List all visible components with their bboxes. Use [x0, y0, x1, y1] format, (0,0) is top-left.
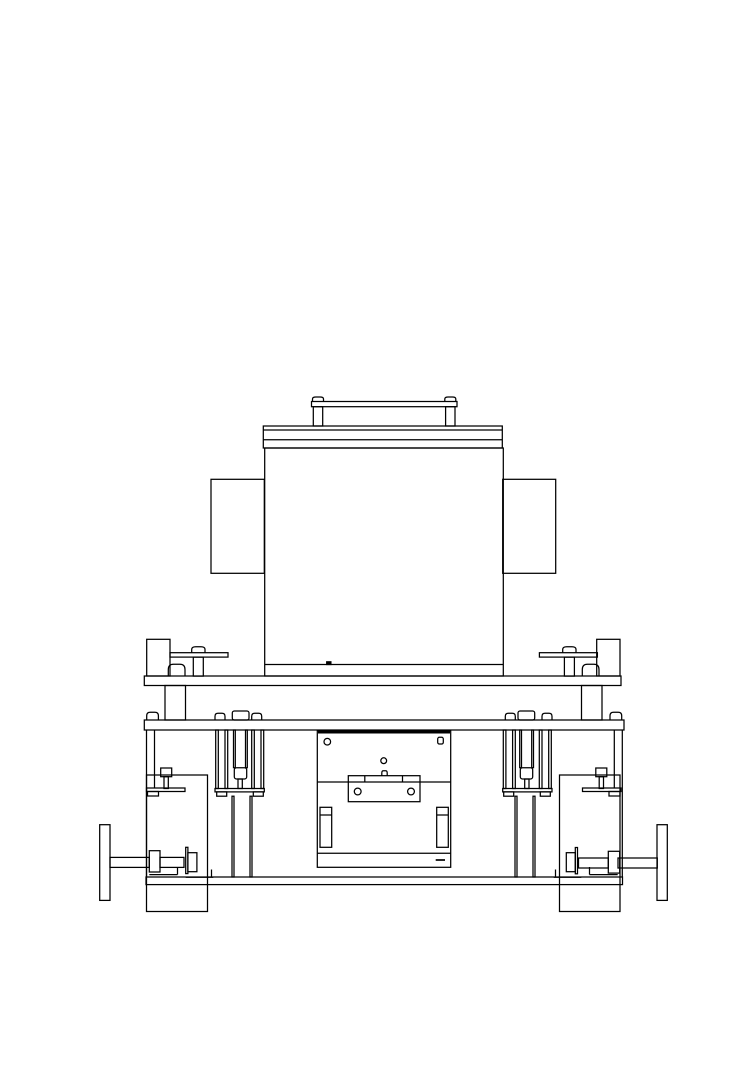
lift-handle-post-left: [313, 407, 322, 426]
guide-cap-right: [518, 711, 535, 720]
guide-leg-right-1: [533, 796, 535, 877]
guide-cap-left: [232, 711, 249, 720]
cabinet-bolt-pad-right: [609, 792, 620, 797]
axle-flange-b-left: [188, 853, 197, 872]
guide-dome-right-a: [542, 713, 552, 720]
guide-nut-right: [520, 768, 532, 779]
side-flange-left: [211, 479, 264, 573]
caster-wheel-right: [657, 825, 667, 901]
clamp-pad-left: [168, 664, 185, 676]
shelf-column-left: [165, 686, 186, 721]
deck-bolt-dome-far-left: [147, 712, 159, 720]
guide-rail-right-3: [513, 730, 516, 789]
lift-handle-rail: [312, 402, 458, 407]
clamp-bar-hole-right: [408, 788, 415, 795]
axle-outer-left: [110, 857, 149, 867]
guide-leg-right-2: [515, 796, 517, 877]
guide-foot-pad-right-2: [540, 792, 550, 796]
guide-rail-left-2: [225, 730, 228, 789]
guide-rail-left-4: [261, 730, 264, 789]
cabinet-bolt-stem-right: [599, 777, 603, 789]
clamp-bar-hole-left: [354, 788, 361, 795]
shelf-column-right: [582, 686, 603, 721]
guide-screw-right-1: [532, 730, 534, 768]
guide-stem-left: [238, 779, 242, 789]
guide-leg-left-2: [250, 796, 252, 877]
guide-dome-left-a: [215, 713, 225, 720]
guide-leg-left-1: [232, 796, 234, 877]
clamp-lever-knob-left: [192, 647, 205, 653]
guide-rail-left-1: [216, 730, 219, 789]
main-housing-weld-tick: [327, 662, 331, 665]
guide-screw-right-2: [520, 730, 522, 768]
fixture-hole-top-left: [324, 738, 331, 745]
deck-plate: [144, 720, 624, 730]
guide-rail-right-4: [503, 730, 506, 789]
lift-handle-cap-right: [445, 397, 456, 402]
clamp-lever-right: [539, 653, 597, 657]
side-flange-right: [503, 479, 556, 573]
guide-dome-right-b: [505, 713, 515, 720]
cad-drawing-page: [0, 0, 755, 1083]
deck-bolt-dome-far-right: [610, 712, 622, 720]
base-plate: [146, 877, 623, 885]
clamp-lever-post-right: [564, 657, 574, 676]
guide-foot-pad-left-2: [253, 792, 263, 796]
machine-front-view-drawing: [0, 0, 755, 1083]
fixture-hole-top-right: [438, 737, 444, 744]
clamp-lever-post-left: [193, 657, 203, 676]
clamp-block-left: [147, 639, 170, 676]
fixture-slot-right: [437, 807, 449, 847]
guide-nut-left: [234, 768, 246, 779]
top-cover-plate: [263, 426, 502, 448]
guide-stem-right: [525, 779, 529, 789]
axle-flange-a-left: [149, 851, 160, 872]
clamp-lever-left: [170, 653, 228, 657]
axle-flange-b-right: [566, 853, 575, 872]
guide-rail-right-1: [549, 730, 552, 789]
guide-dome-left-b: [252, 713, 262, 720]
guide-foot-pad-left-1: [217, 792, 227, 796]
axle-inner-right: [579, 858, 609, 868]
cabinet-bolt-stem-left: [164, 777, 168, 789]
fixture-tab-center: [382, 771, 387, 776]
guide-foot-pad-right-1: [504, 792, 514, 796]
lift-handle-cap-left: [313, 397, 324, 402]
guide-rail-left-3: [252, 730, 255, 789]
support-shelf: [144, 676, 621, 686]
fixture-hole-center: [381, 758, 387, 764]
center-fixture-plate: [317, 731, 450, 868]
fixture-slot-left: [320, 807, 332, 847]
guide-rail-right-2: [539, 730, 542, 789]
cabinet-bolt-pad-left: [148, 792, 159, 797]
guide-screw-left-1: [234, 730, 236, 768]
axle-inner-left: [160, 857, 184, 867]
lift-handle-post-right: [446, 407, 455, 426]
axle-outer-right: [618, 858, 657, 868]
main-housing-body: [265, 448, 504, 676]
clamp-block-right: [597, 639, 620, 676]
clamp-lever-knob-right: [563, 647, 576, 653]
caster-wheel-left: [100, 825, 110, 901]
guide-screw-left-2: [246, 730, 248, 768]
